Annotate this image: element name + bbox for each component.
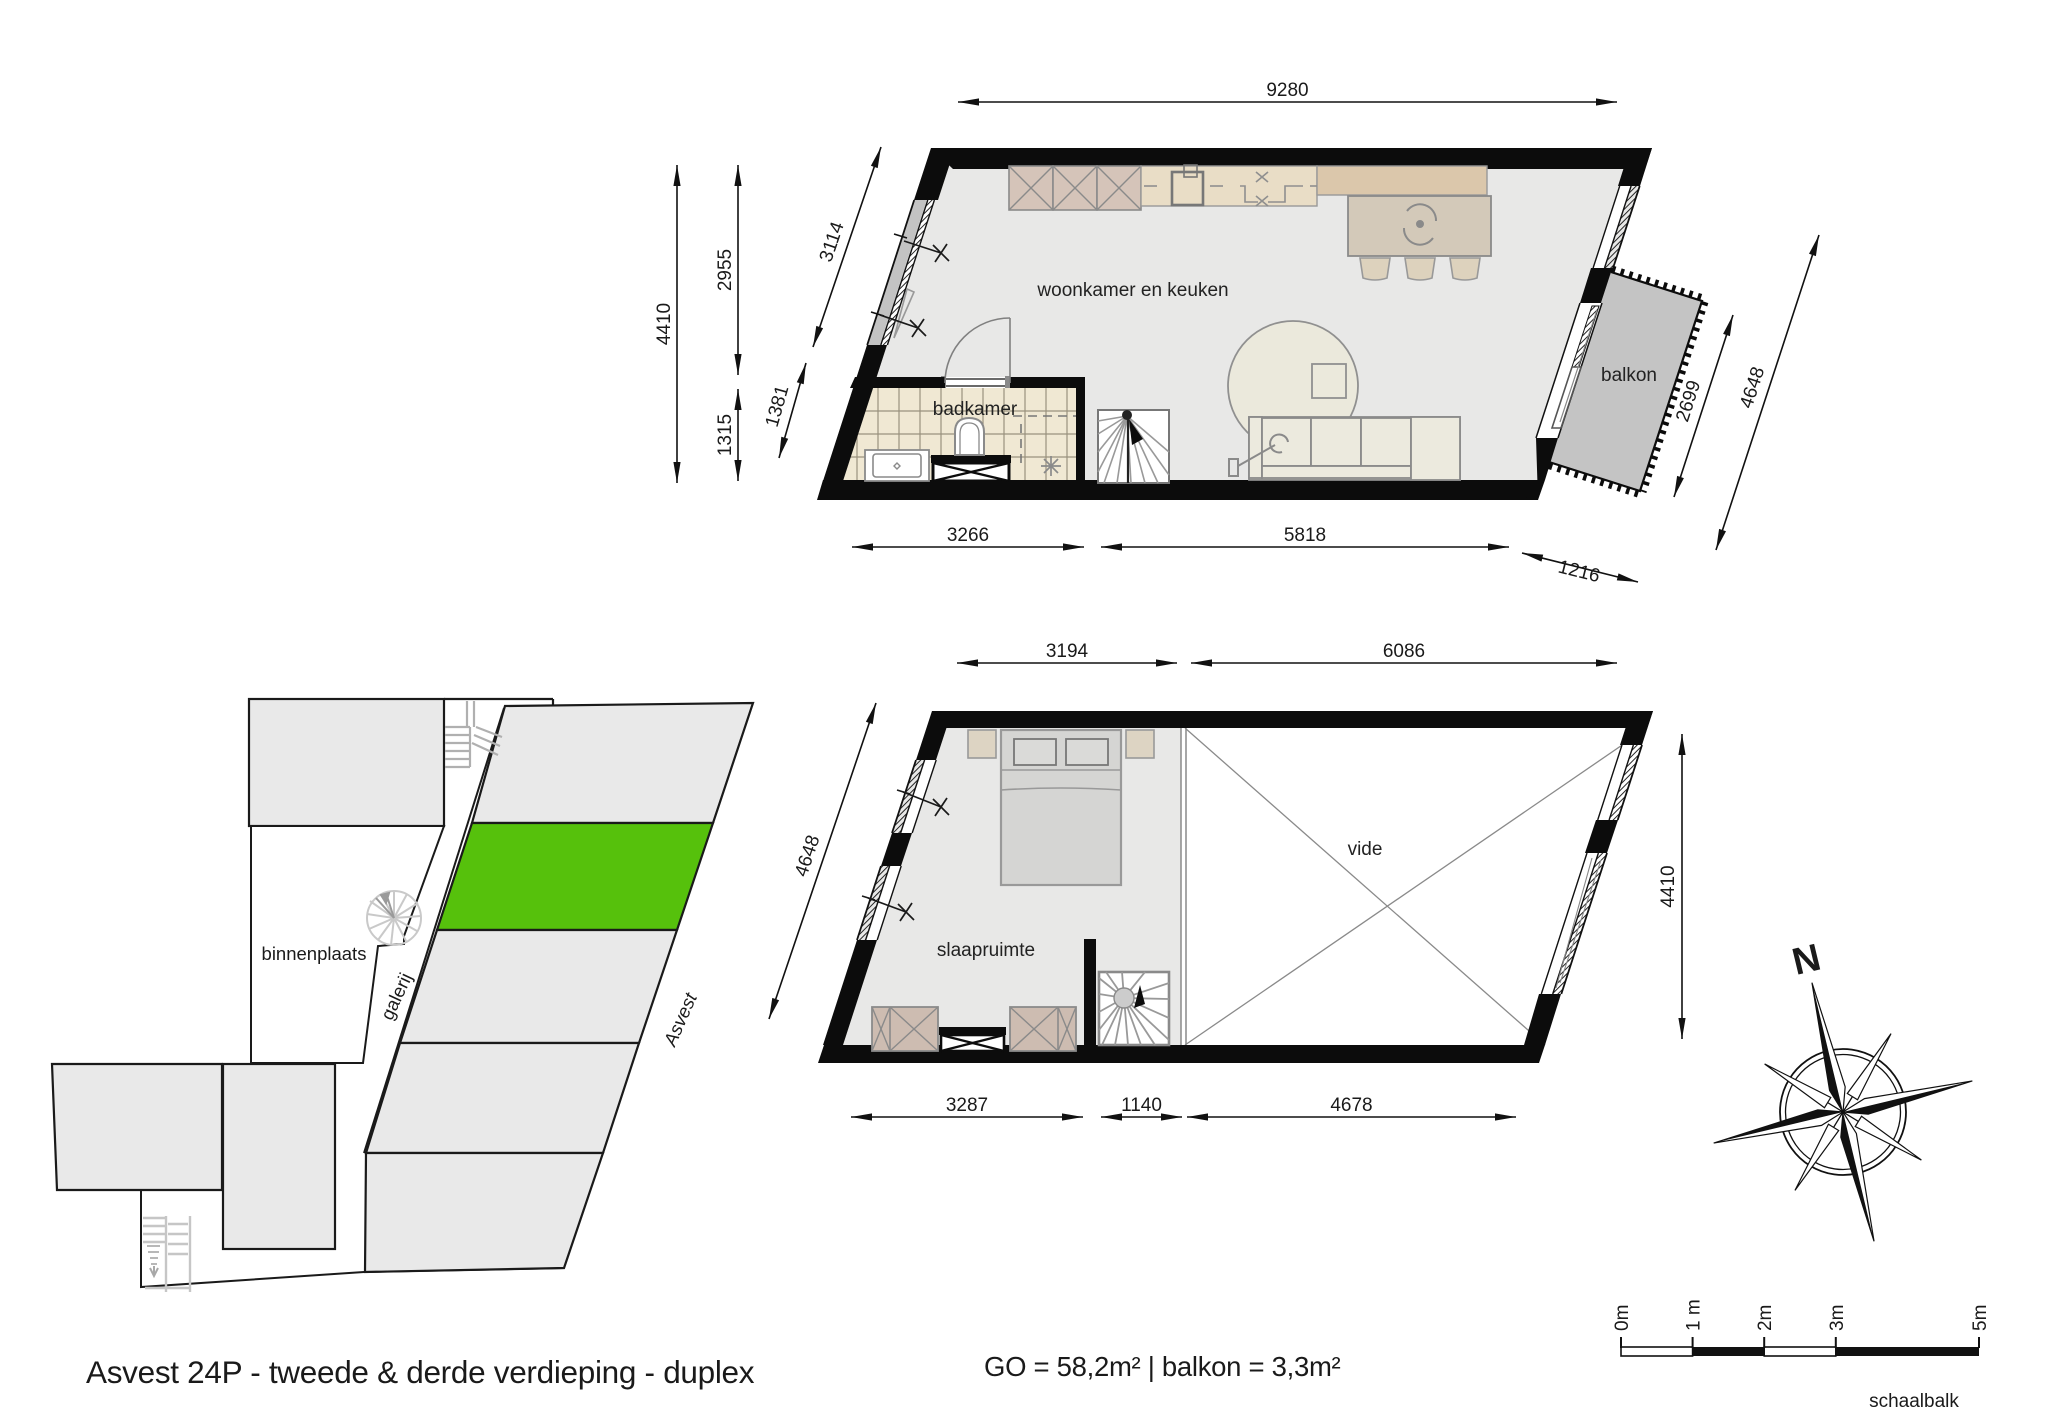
svg-text:schaalbalk: schaalbalk	[1869, 1391, 1959, 1412]
svg-text:3m: 3m	[1827, 1305, 1848, 1331]
svg-text:9280: 9280	[1266, 80, 1308, 101]
svg-text:vide: vide	[1348, 839, 1383, 860]
svg-text:3194: 3194	[1046, 641, 1089, 662]
svg-text:4410: 4410	[1658, 865, 1679, 907]
svg-text:slaapruimte: slaapruimte	[937, 940, 1035, 961]
svg-text:badkamer: badkamer	[933, 399, 1018, 420]
svg-text:GO = 58,2m² | balkon = 3,3m²: GO = 58,2m² | balkon = 3,3m²	[984, 1351, 1341, 1382]
svg-text:4678: 4678	[1330, 1095, 1372, 1116]
svg-text:1315: 1315	[715, 414, 736, 456]
svg-text:1 m: 1 m	[1684, 1299, 1705, 1331]
svg-text:1140: 1140	[1121, 1095, 1162, 1116]
svg-text:5818: 5818	[1284, 525, 1326, 546]
svg-text:3287: 3287	[946, 1095, 988, 1116]
svg-text:binnenplaats: binnenplaats	[262, 943, 367, 964]
svg-text:3266: 3266	[947, 525, 989, 546]
svg-text:balkon: balkon	[1601, 365, 1657, 386]
svg-text:6086: 6086	[1383, 641, 1425, 662]
svg-text:0m: 0m	[1612, 1305, 1633, 1331]
svg-text:4410: 4410	[654, 303, 675, 345]
svg-text:2955: 2955	[715, 249, 736, 291]
svg-text:Asvest 24P - tweede & derde ve: Asvest 24P - tweede & derde verdieping -…	[86, 1354, 755, 1390]
svg-text:woonkamer en keuken: woonkamer en keuken	[1036, 280, 1228, 301]
svg-text:5m: 5m	[1970, 1305, 1991, 1331]
svg-text:2m: 2m	[1755, 1305, 1776, 1331]
